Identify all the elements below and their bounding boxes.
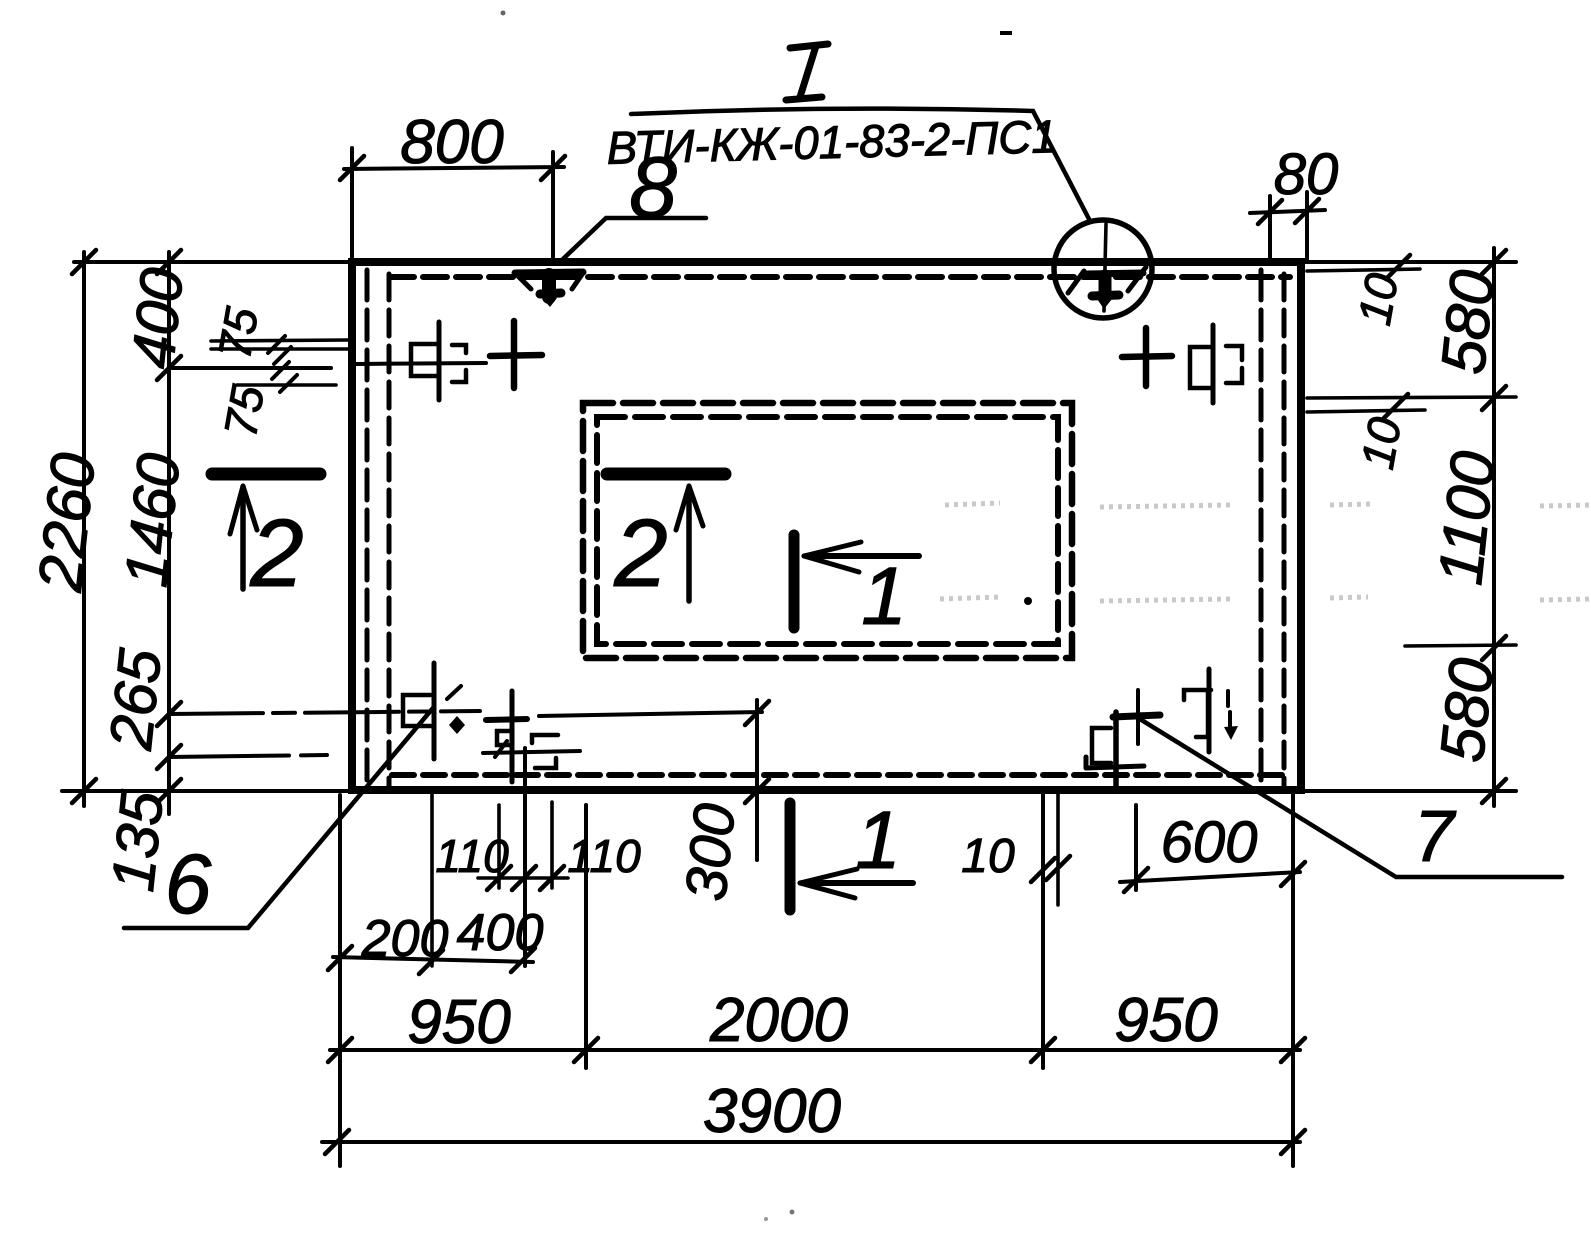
svg-text:7: 7 bbox=[1414, 797, 1457, 877]
svg-text:2: 2 bbox=[613, 500, 667, 607]
svg-text:110: 110 bbox=[567, 830, 641, 882]
svg-text:400: 400 bbox=[119, 265, 196, 372]
svg-text:10: 10 bbox=[1351, 413, 1411, 473]
svg-text:10: 10 bbox=[961, 830, 1015, 883]
svg-text:75: 75 bbox=[208, 303, 268, 363]
svg-text:80: 80 bbox=[1274, 142, 1339, 207]
svg-text:75: 75 bbox=[214, 381, 274, 441]
svg-text:580: 580 bbox=[1429, 267, 1508, 377]
svg-text:950: 950 bbox=[407, 988, 510, 1057]
svg-text:300: 300 bbox=[673, 801, 748, 904]
svg-text:600: 600 bbox=[1161, 810, 1258, 875]
svg-text:1460: 1460 bbox=[112, 450, 193, 590]
svg-text:110: 110 bbox=[435, 830, 509, 882]
svg-text:1: 1 bbox=[861, 551, 907, 642]
svg-text:10: 10 bbox=[1348, 269, 1408, 329]
svg-text:1100: 1100 bbox=[1426, 448, 1509, 588]
svg-text:3900: 3900 bbox=[703, 1077, 841, 1146]
svg-text:950: 950 bbox=[1114, 986, 1217, 1055]
svg-text:2260: 2260 bbox=[26, 450, 109, 595]
svg-text:2: 2 bbox=[249, 500, 303, 607]
svg-text:1: 1 bbox=[855, 795, 901, 886]
svg-text:6: 6 bbox=[165, 837, 212, 931]
svg-text:580: 580 bbox=[1428, 655, 1507, 765]
svg-text:265: 265 bbox=[97, 645, 174, 753]
svg-text:200: 200 bbox=[361, 910, 449, 968]
svg-text:2000: 2000 bbox=[709, 986, 848, 1055]
svg-text:400: 400 bbox=[457, 904, 544, 962]
svg-text:800: 800 bbox=[400, 108, 503, 177]
